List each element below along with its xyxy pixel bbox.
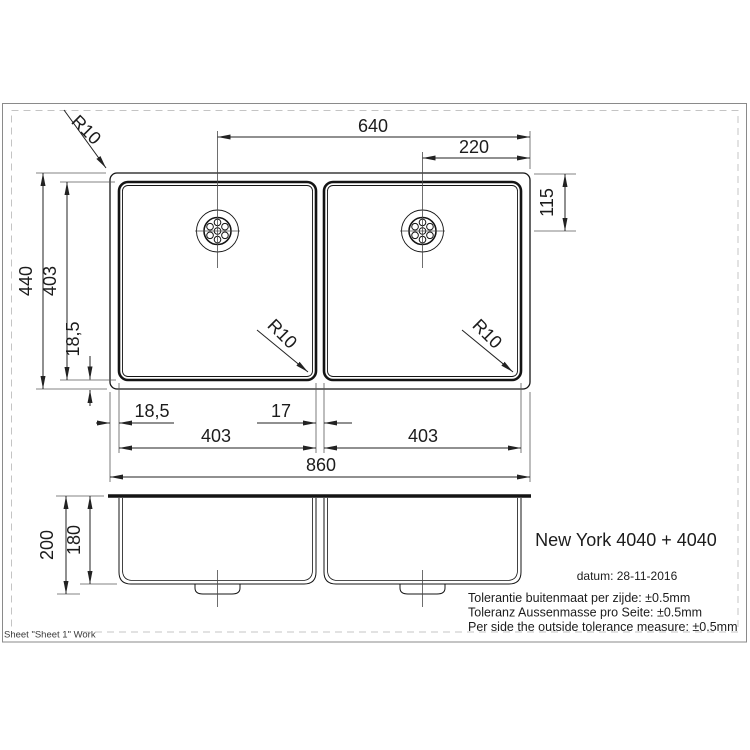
tolerance-line-en: Per side the outside tolerance measure: …	[468, 620, 738, 634]
sheet-border	[3, 104, 747, 643]
sheet-label: Sheet "Sheet 1" Work	[4, 630, 96, 641]
dim-403bl-label: 403	[201, 426, 231, 446]
dim-640-label: 640	[358, 116, 388, 136]
radius-callout-outer: R10	[64, 110, 106, 168]
sink-outer-rim	[110, 173, 530, 389]
r10-bowl-left-label: R10	[263, 315, 300, 352]
dim-180-label: 180	[64, 525, 84, 555]
bowl-left-profile-inner	[123, 498, 313, 581]
dim-200-label: 200	[37, 530, 57, 560]
dim-640: 640	[218, 116, 531, 137]
radius-callout-bowl-left: R10	[257, 315, 308, 372]
tolerance-line-nl: Tolerantie buitenmaat per zijde: ±0.5mm	[468, 591, 690, 605]
bowl-right-profile-inner	[328, 498, 518, 581]
technical-drawing-canvas: Sheet "Sheet 1" Work	[0, 0, 750, 750]
dim-220-label: 220	[459, 137, 489, 157]
dim-115-label: 115	[537, 188, 557, 217]
dim-115: 115	[537, 174, 565, 231]
dim-403v-label: 403	[40, 266, 60, 296]
r10-outer-label: R10	[67, 111, 104, 148]
dim-17-label: 17	[271, 401, 291, 421]
extension-lines-top-view	[36, 131, 576, 482]
top-view: 640 220 115 440 403 18,5 18,5	[16, 110, 576, 482]
title-block: New York 4040 + 4040 datum: 28-11-2016 T…	[468, 530, 738, 634]
r10-bowl-right-label: R10	[468, 315, 505, 352]
product-name: New York 4040 + 4040	[535, 530, 717, 550]
dim-440-label: 440	[16, 266, 36, 296]
dim-403br-label: 403	[408, 426, 438, 446]
side-view: 200 180	[37, 496, 531, 607]
dim-18-5h-label: 18,5	[134, 401, 169, 421]
dim-220: 220	[423, 137, 531, 158]
dim-18-5-horizontal: 18,5	[96, 401, 174, 423]
dim-18-5v-label: 18,5	[63, 321, 83, 356]
dim-403-bottom-left: 403	[119, 426, 316, 448]
tolerance-line-de: Toleranz Aussenmasse pro Seite: ±0.5mm	[468, 606, 702, 620]
dim-200: 200	[37, 496, 66, 594]
date-label: datum: 28-11-2016	[577, 569, 678, 583]
dim-180: 180	[64, 496, 90, 584]
dim-860-label: 860	[306, 455, 336, 475]
sheet-frame: Sheet "Sheet 1" Work	[3, 104, 747, 643]
dim-17: 17	[257, 401, 352, 423]
dim-860: 860	[110, 455, 530, 477]
radius-callout-bowl-right: R10	[462, 315, 513, 372]
dim-440: 440	[16, 173, 43, 389]
dim-403-bottom-right: 403	[324, 426, 521, 448]
